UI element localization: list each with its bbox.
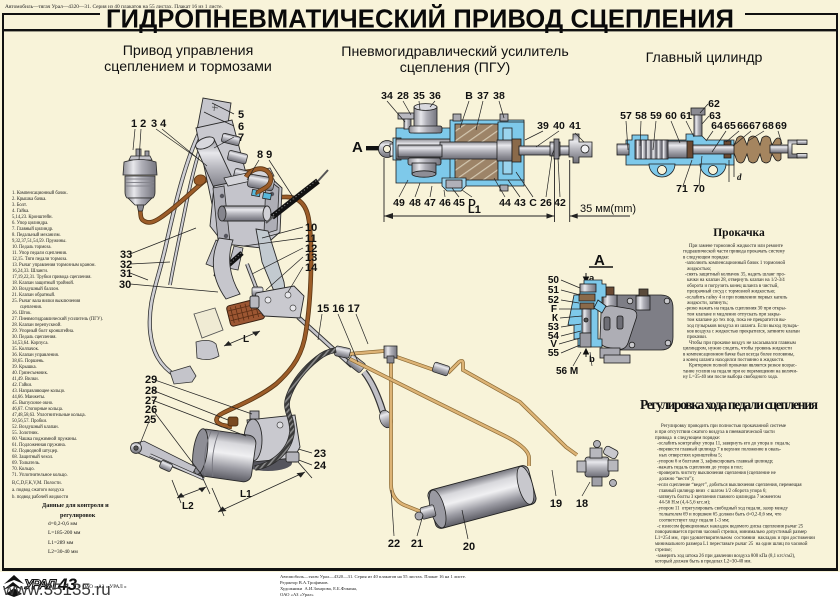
svg-text:L: L	[243, 334, 249, 345]
svg-text:26: 26	[540, 197, 552, 209]
svg-text:Пневмогидравлический усилитель: Пневмогидравлический усилитель	[341, 44, 568, 60]
svg-text:L1: L1	[468, 204, 481, 216]
svg-text:L2: L2	[182, 501, 194, 512]
svg-text:сцепления (ПГУ): сцепления (ПГУ)	[400, 60, 511, 76]
svg-text:В: В	[465, 90, 473, 102]
svg-text:64: 64	[711, 120, 723, 132]
svg-text:49: 49	[393, 197, 405, 209]
svg-text:23: 23	[314, 448, 326, 460]
svg-text:56 М: 56 М	[556, 366, 578, 377]
svg-text:8 9: 8 9	[257, 149, 272, 161]
svg-text:45: 45	[453, 197, 465, 209]
svg-text:42: 42	[554, 197, 566, 209]
svg-text:7: 7	[238, 132, 244, 144]
svg-text:34: 34	[381, 90, 393, 102]
svg-text:58: 58	[635, 110, 647, 122]
svg-text:35: 35	[413, 90, 425, 102]
svg-text:L=185-200 мм: L=185-200 мм	[48, 530, 81, 536]
svg-text:24: 24	[314, 460, 327, 472]
svg-text:62: 62	[708, 98, 720, 110]
svg-text:35 мм(mm): 35 мм(mm)	[580, 203, 636, 215]
svg-text:71: 71	[676, 183, 688, 195]
svg-text:18: 18	[576, 498, 588, 510]
svg-text:40: 40	[553, 120, 565, 132]
svg-text:L1: L1	[240, 489, 252, 500]
svg-text:69: 69	[775, 120, 787, 132]
svg-text:Главный цилиндр: Главный цилиндр	[646, 50, 763, 66]
svg-text:43: 43	[514, 197, 526, 209]
svg-text:1 2: 1 2	[131, 118, 146, 130]
svg-text:3 4: 3 4	[151, 118, 167, 130]
svg-text:L2=30-40 мм: L2=30-40 мм	[48, 549, 78, 555]
svg-text:регулировок: регулировок	[60, 512, 96, 519]
svg-text:b: b	[589, 354, 595, 365]
svg-text:А: А	[352, 139, 363, 156]
svg-text:30: 30	[119, 279, 131, 291]
svg-text:15 16 17: 15 16 17	[317, 303, 360, 315]
svg-text:Данные для контроля и: Данные для контроля и	[42, 502, 109, 509]
svg-text:25: 25	[144, 414, 156, 426]
svg-text:67: 67	[749, 120, 761, 132]
svg-text:41: 41	[569, 120, 581, 132]
svg-text:21: 21	[411, 538, 423, 550]
svg-text:60: 60	[665, 110, 677, 122]
svg-text:38: 38	[493, 90, 505, 102]
svg-text:19: 19	[550, 498, 562, 510]
svg-text:сцеплением и тормозами: сцеплением и тормозами	[104, 59, 272, 75]
svg-text:L1=289 мм: L1=289 мм	[48, 540, 74, 546]
svg-text:55: 55	[548, 348, 560, 359]
svg-text:С: С	[529, 197, 537, 209]
svg-text:46: 46	[439, 197, 451, 209]
svg-text:Регулировка хода педали сцепле: Регулировка хода педали сцепления	[640, 397, 818, 412]
svg-text:d: d	[737, 172, 742, 182]
svg-text:22: 22	[388, 538, 400, 550]
svg-text:14: 14	[305, 262, 318, 274]
svg-text:28: 28	[397, 90, 409, 102]
svg-text:20: 20	[463, 541, 475, 553]
svg-text:5: 5	[238, 109, 244, 121]
svg-text:59: 59	[650, 110, 662, 122]
svg-text:36: 36	[429, 90, 441, 102]
svg-text:68: 68	[762, 120, 774, 132]
svg-text:ГИДРОПНЕВМАТИЧЕСКИЙ ПРИВОД СЦЕ: ГИДРОПНЕВМАТИЧЕСКИЙ ПРИВОД СЦЕПЛЕНИЯ	[106, 4, 734, 34]
svg-text:39: 39	[537, 120, 549, 132]
svg-text:d=0,2-0,6 мм: d=0,2-0,6 мм	[48, 521, 78, 527]
svg-text:44: 44	[499, 197, 511, 209]
svg-text:37: 37	[477, 90, 489, 102]
svg-text:61: 61	[680, 110, 692, 122]
svg-text:57: 57	[620, 110, 632, 122]
svg-text:48: 48	[409, 197, 421, 209]
svg-text:47: 47	[424, 197, 436, 209]
svg-text:Привод управления: Привод управления	[123, 43, 254, 59]
svg-text:66: 66	[737, 120, 749, 132]
svg-text:www.35135.ru: www.35135.ru	[2, 580, 111, 598]
svg-text:Прокачка: Прокачка	[713, 227, 765, 239]
svg-text:65: 65	[724, 120, 736, 132]
